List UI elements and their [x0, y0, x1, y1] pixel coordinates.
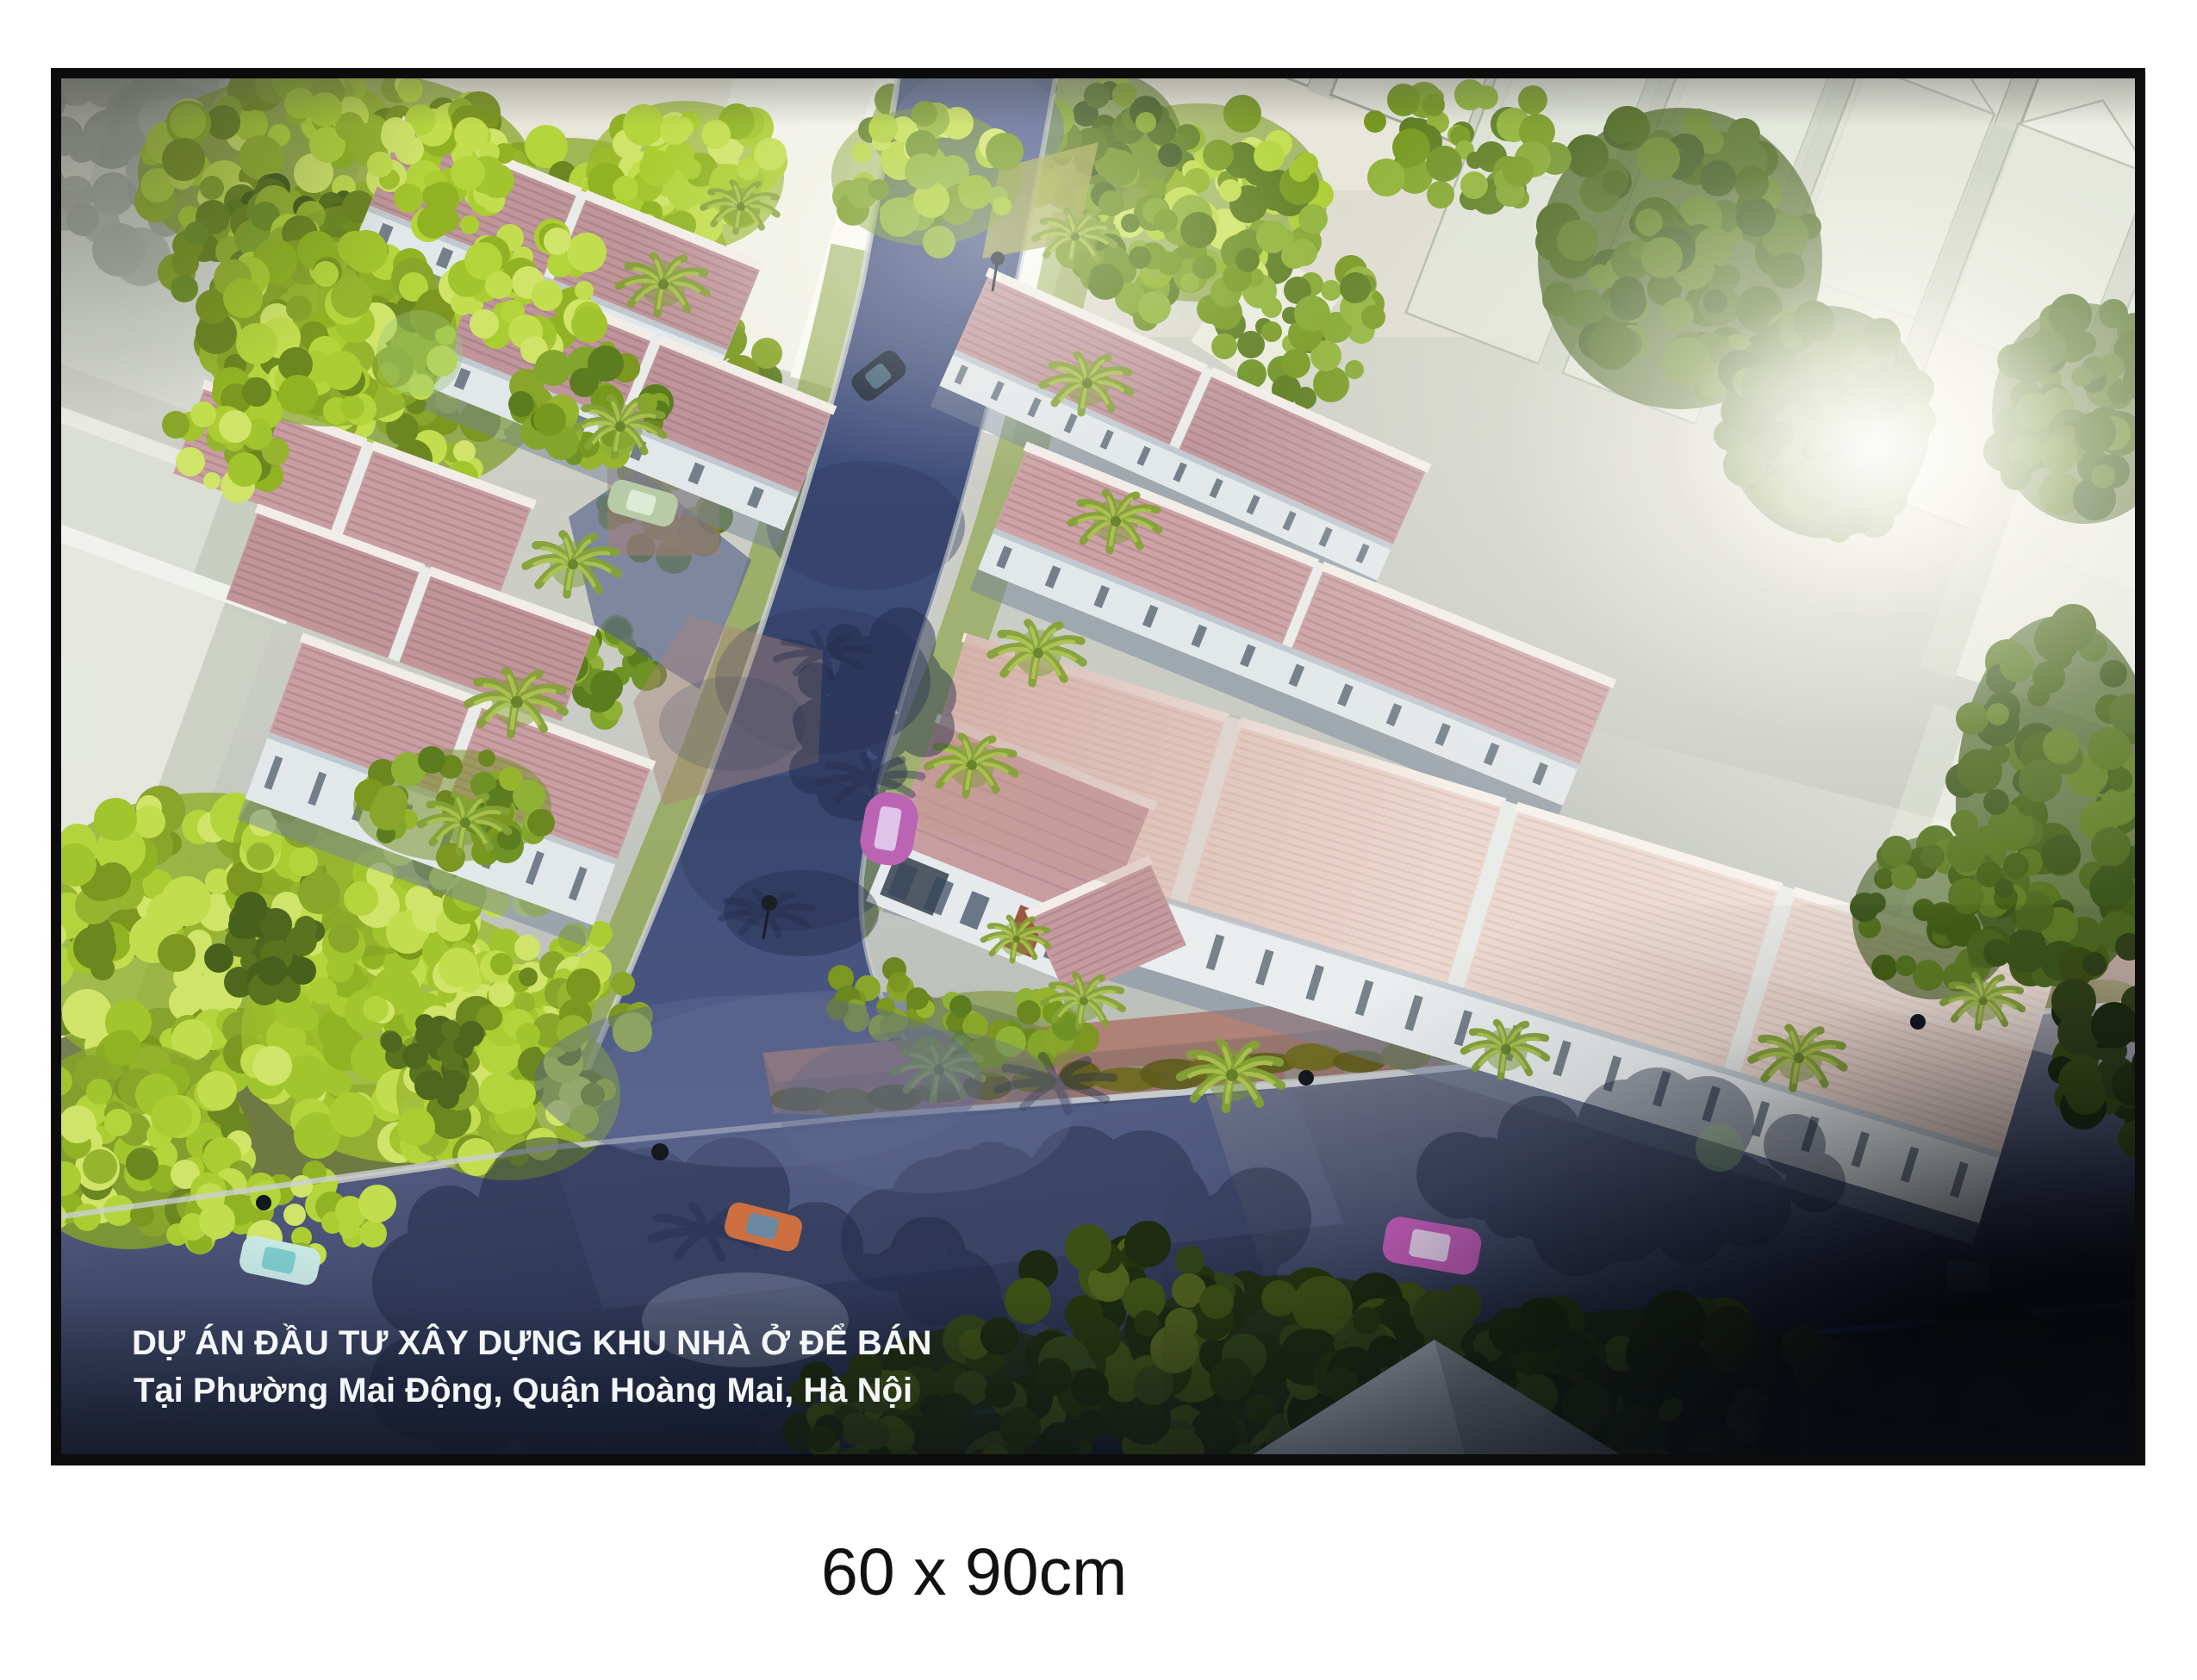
svg-text:DỰ ÁN ĐẦU TƯ XÂY DỰNG KHU NHÀ: DỰ ÁN ĐẦU TƯ XÂY DỰNG KHU NHÀ Ở ĐỂ BÁN: [132, 1322, 932, 1362]
svg-text:Tại Phường Mai Động, Quận Hoàn: Tại Phường Mai Động, Quận Hoàng Mai, Hà …: [134, 1372, 912, 1409]
svg-text:60 x 90cm: 60 x 90cm: [821, 1535, 1127, 1609]
